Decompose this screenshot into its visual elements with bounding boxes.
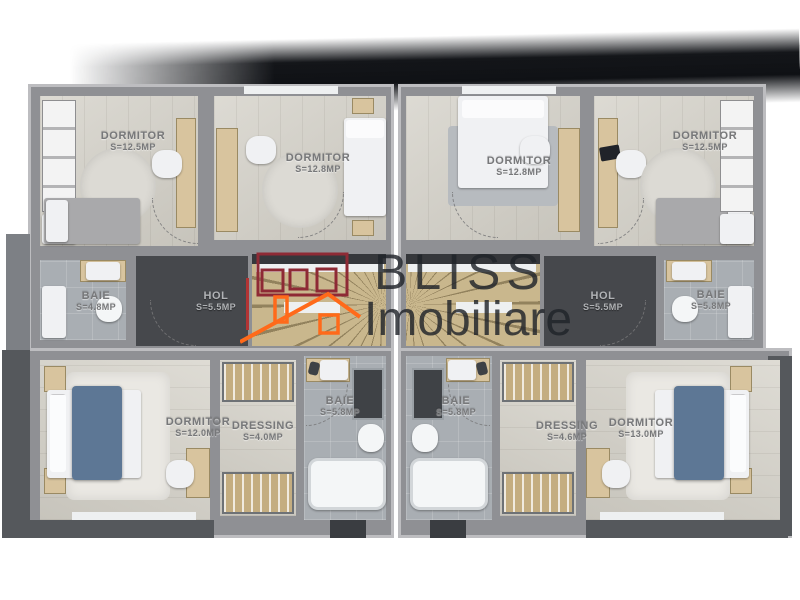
room-area: S=5.8MP [436, 407, 476, 417]
room-name: BAIE [326, 395, 355, 407]
room-name: BAIE [697, 289, 726, 301]
pillow-top-center-left [346, 120, 384, 138]
nightstand-a-bottom-left [44, 366, 66, 392]
duvet-bottom-left [72, 386, 122, 480]
chair-bottom-left [166, 460, 194, 488]
pillows-top-center-right [462, 100, 544, 118]
terrace-left-upper [6, 234, 30, 350]
room-label-dressing-left: DRESSING S=4.0MP [232, 420, 294, 442]
room-label-dormitor-bottom-right: DORMITOR S=13.0MP [609, 417, 673, 439]
wardrobe-bottom-dressing-right [502, 472, 574, 514]
room-label-dormitor-top-right: DORMITOR S=12.5MP [673, 130, 737, 152]
window-sill-top-center-left [244, 86, 338, 94]
terrace-left-lower [2, 350, 30, 536]
toilet-baie-bottom-right [412, 424, 438, 452]
room-area: S=5.5MP [196, 302, 236, 312]
room-label-hol-left: HOL S=5.5MP [196, 290, 236, 312]
cabinet-top-right [720, 214, 754, 244]
room-area: S=12.8MP [487, 167, 551, 177]
door-step-left [330, 520, 366, 538]
sink-baie-mid-right [672, 262, 706, 280]
room-area: S=4.8MP [76, 302, 116, 312]
balcony-door-sill-bottom-right [600, 512, 724, 520]
room-label-hol-right: HOL S=5.5MP [583, 290, 623, 312]
chair-top-left [152, 150, 182, 178]
sink-baie-bottom-right [448, 360, 476, 380]
room-name: DORMITOR [609, 417, 673, 429]
room-label-dormitor-top-left: DORMITOR S=12.5MP [101, 130, 165, 152]
nightstand-a-top-center-left [352, 98, 374, 114]
shower-baie-mid-right [728, 286, 752, 338]
wardrobe-top-right [720, 100, 754, 212]
floor-plan-canvas: DORMITOR S=12.5MP DORMITOR S=12.8MP BAIE… [0, 0, 800, 600]
room-name: DRESSING [232, 420, 294, 432]
wardrobe-top-left [42, 100, 76, 212]
shower-baie-mid-left [42, 286, 66, 338]
watermark-brand-line2: Imobiliare [364, 296, 572, 344]
door-step-right [430, 520, 466, 538]
room-area: S=4.0MP [232, 432, 294, 442]
window-sill-top-center-right [462, 86, 556, 94]
terrace-bottom-right [586, 520, 788, 538]
duvet-bottom-right [674, 386, 724, 480]
room-area: S=12.5MP [673, 142, 737, 152]
room-name: HOL [203, 290, 228, 302]
wardrobe-top-dressing-right [502, 362, 574, 402]
terrace-bottom-left [2, 520, 214, 538]
room-area: S=5.8MP [320, 407, 360, 417]
toilet-baie-bottom-left [358, 424, 384, 452]
room-name: DORMITOR [101, 130, 165, 142]
nightstand-b-top-center-left [352, 220, 374, 236]
room-label-baie-mid-left: BAIE S=4.8MP [76, 290, 116, 312]
room-label-baie-mid-right: BAIE S=5.8MP [691, 289, 731, 311]
room-area: S=13.0MP [609, 429, 673, 439]
chair-top-center-left [246, 136, 276, 164]
watermark-brand-line1: BLISS [374, 247, 546, 297]
wardrobe-top-dressing-left [222, 362, 294, 402]
pillows-bottom-left [50, 394, 66, 472]
desk-top-center-right [558, 128, 580, 232]
pillow-top-left [46, 200, 68, 242]
room-area: S=12.8MP [286, 164, 350, 174]
room-label-baie-bottom-left: BAIE S=5.8MP [320, 395, 360, 417]
room-name: HOL [590, 290, 615, 302]
room-label-dormitor-top-center-left: DORMITOR S=12.8MP [286, 152, 350, 174]
room-area: S=5.8MP [691, 301, 731, 311]
room-name: DORMITOR [673, 130, 737, 142]
room-area: S=12.5MP [101, 142, 165, 152]
balcony-door-sill-bottom-left [72, 512, 196, 520]
room-area: S=4.6MP [536, 432, 598, 442]
pillows-bottom-right [730, 394, 746, 472]
room-area: S=5.5MP [583, 302, 623, 312]
room-label-dormitor-top-center-right: DORMITOR S=12.8MP [487, 155, 551, 177]
room-label-baie-bottom-right: BAIE S=5.8MP [436, 395, 476, 417]
nightstand-a-bottom-right [730, 366, 752, 392]
room-label-dressing-right: DRESSING S=4.6MP [536, 420, 598, 442]
room-label-dormitor-bottom-left: DORMITOR S=12.0MP [166, 416, 230, 438]
chair-bottom-right [602, 460, 630, 488]
desk-top-center-left [216, 128, 238, 232]
sink-baie-bottom-left [320, 360, 348, 380]
room-name: BAIE [82, 290, 111, 302]
room-area: S=12.0MP [166, 428, 230, 438]
room-name: BAIE [442, 395, 471, 407]
house-roof-icon [240, 250, 365, 345]
room-name: DORMITOR [166, 416, 230, 428]
sink-baie-mid-left [86, 262, 120, 280]
room-name: DORMITOR [286, 152, 350, 164]
room-name: DRESSING [536, 420, 598, 432]
room-name: DORMITOR [487, 155, 551, 167]
bathtub-baie-bottom-left [308, 458, 386, 510]
wardrobe-bottom-dressing-left [222, 472, 294, 514]
bathtub-baie-bottom-right [410, 458, 488, 510]
